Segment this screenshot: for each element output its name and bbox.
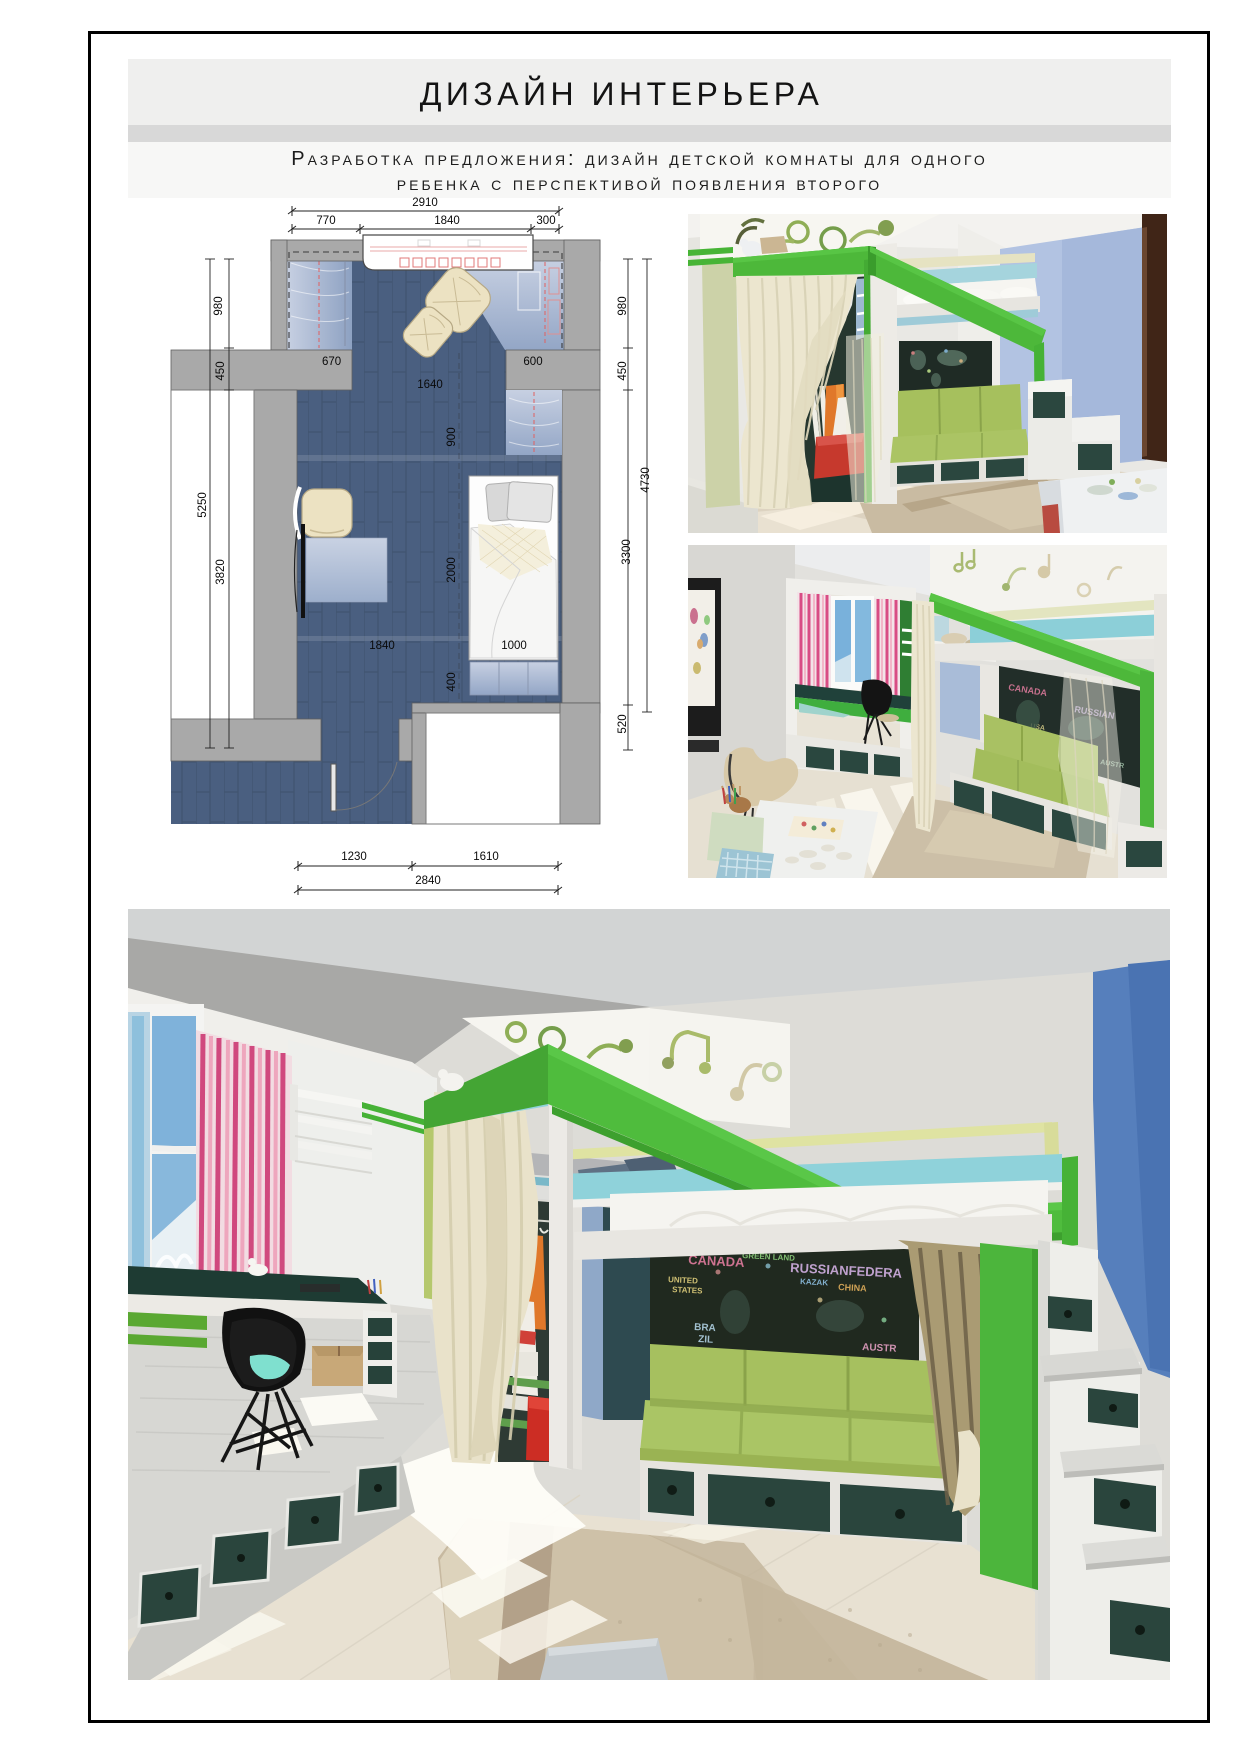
svg-text:2910: 2910 xyxy=(412,197,438,209)
svg-text:KAZAK: KAZAK xyxy=(800,1277,829,1287)
svg-text:980: 980 xyxy=(617,296,629,315)
svg-text:980: 980 xyxy=(213,296,225,315)
svg-text:CHINA: CHINA xyxy=(838,1282,867,1294)
svg-text:300: 300 xyxy=(536,215,555,227)
svg-text:670: 670 xyxy=(322,356,341,368)
svg-text:1640: 1640 xyxy=(417,379,443,391)
svg-text:770: 770 xyxy=(316,215,335,227)
svg-text:450: 450 xyxy=(215,361,227,380)
svg-text:520: 520 xyxy=(617,714,629,733)
svg-text:UNITED: UNITED xyxy=(668,1275,698,1286)
svg-text:450: 450 xyxy=(617,361,629,380)
svg-text:AUSTR: AUSTR xyxy=(862,1342,898,1355)
svg-text:3300: 3300 xyxy=(621,539,633,565)
svg-text:3820: 3820 xyxy=(215,559,227,585)
svg-text:2840: 2840 xyxy=(415,875,441,887)
svg-text:400: 400 xyxy=(446,672,458,691)
svg-text:BRA: BRA xyxy=(694,1322,716,1334)
svg-text:2000: 2000 xyxy=(446,557,458,583)
svg-text:1000: 1000 xyxy=(501,640,527,652)
svg-text:1230: 1230 xyxy=(341,851,367,863)
svg-text:STATES: STATES xyxy=(672,1285,703,1296)
svg-text:1840: 1840 xyxy=(369,640,395,652)
svg-text:ZIL: ZIL xyxy=(698,1334,714,1346)
svg-text:600: 600 xyxy=(523,356,542,368)
svg-text:1840: 1840 xyxy=(434,215,460,227)
svg-text:5250: 5250 xyxy=(197,492,209,518)
svg-text:4730: 4730 xyxy=(640,467,652,493)
svg-text:900: 900 xyxy=(446,427,458,446)
svg-text:1610: 1610 xyxy=(473,851,499,863)
